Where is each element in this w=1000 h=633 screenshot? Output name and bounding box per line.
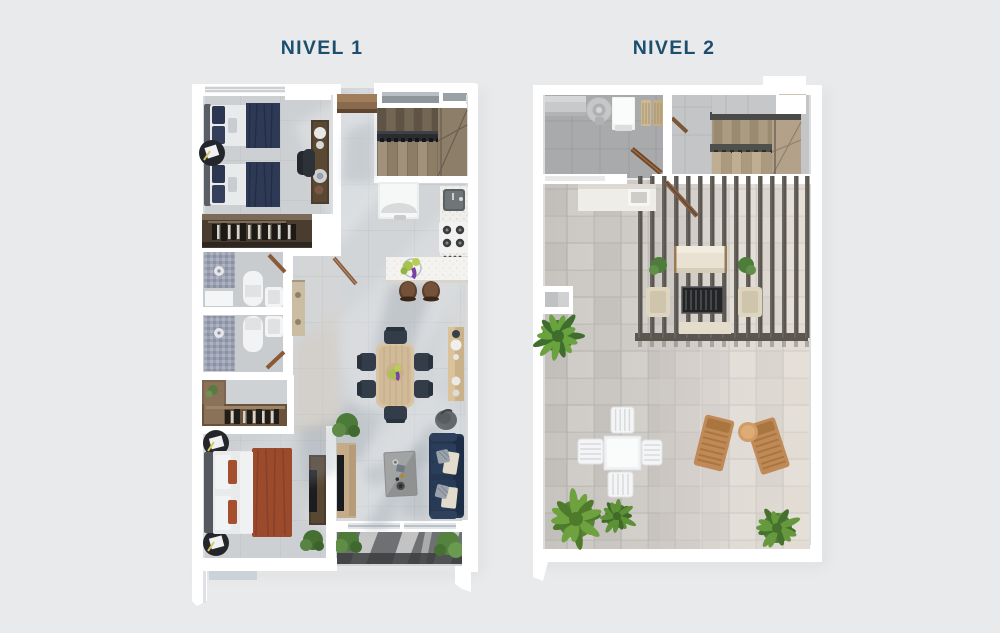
svg-text:NIVEL 2: NIVEL 2	[633, 37, 715, 59]
svg-text:NIVEL 1: NIVEL 1	[281, 37, 363, 59]
